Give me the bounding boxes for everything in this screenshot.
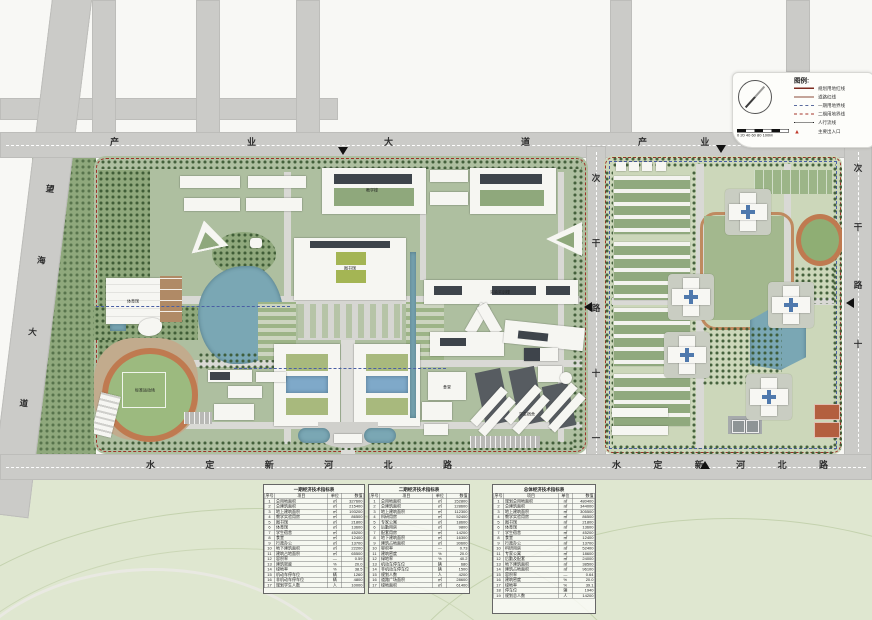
table-title: 一期经济技术指标表 bbox=[264, 485, 364, 493]
strip-buildings bbox=[614, 374, 690, 426]
table-cell: 17 bbox=[264, 583, 275, 588]
road-label-east: 次干路十 bbox=[852, 162, 864, 350]
legend-item-label: 道路红线 bbox=[818, 94, 836, 101]
legend-item: 人行流线 bbox=[794, 118, 869, 127]
legend-item: 二期用地界线 bbox=[794, 110, 869, 119]
label-library: 图书馆 bbox=[344, 265, 356, 271]
table-cell: 61400 bbox=[447, 583, 469, 588]
north-entrance-marker bbox=[338, 147, 348, 155]
road-name-char: 定 bbox=[205, 458, 214, 471]
blue-core-icon bbox=[784, 303, 798, 307]
road-name-char: 次 bbox=[854, 162, 863, 174]
legend-item-label: 规划用地红线 bbox=[818, 85, 845, 92]
road-name-char: 业 bbox=[700, 135, 709, 148]
dark-roof bbox=[334, 174, 412, 184]
table-phase1: 一期经济技术指标表序号项目单位数值1总用地面积㎡3276002总建筑面积㎡215… bbox=[263, 484, 365, 594]
dark-roof bbox=[440, 338, 466, 346]
compass-icon bbox=[738, 80, 772, 114]
table-cell: 绿地面积 bbox=[380, 583, 433, 588]
road-name-char: 水 bbox=[612, 458, 621, 471]
table-total: 总体经济技术指标表序号项目单位数值1规划总用地面积㎡4804002总建筑面积㎡3… bbox=[492, 484, 596, 614]
road-name-char: 业 bbox=[247, 135, 256, 148]
middle-road-entrance-marker bbox=[584, 302, 592, 312]
table-cell: ㎡ bbox=[433, 583, 447, 588]
east-campus-north-entrance-marker bbox=[716, 145, 726, 153]
table-header-cell: 序号 bbox=[264, 493, 275, 498]
main-campus-content bbox=[94, 156, 588, 454]
legend-line-sample-icon bbox=[794, 96, 814, 97]
scale-bar-numbers: 0 20 40 60 80 100M bbox=[737, 133, 789, 138]
dark-roof bbox=[210, 372, 230, 380]
planting bbox=[366, 398, 408, 415]
table-title: 总体经济技术指标表 bbox=[493, 485, 595, 493]
planting bbox=[814, 404, 840, 420]
road-name-char: 路 bbox=[819, 458, 828, 471]
compass-needle-icon bbox=[745, 86, 765, 108]
label-teaching: 教学楼 bbox=[366, 187, 378, 193]
table-header-cell: 序号 bbox=[493, 493, 504, 498]
blue-core-icon bbox=[684, 295, 698, 299]
road-name-char: 十 bbox=[592, 367, 601, 379]
road-label-south-left: 水定新河北路 bbox=[146, 458, 452, 471]
road-label-industry-left: 产业大道 bbox=[110, 135, 530, 148]
road-name-char: 北 bbox=[778, 458, 787, 471]
table-cell: 人 bbox=[328, 583, 342, 588]
road-name-char: 路 bbox=[443, 458, 452, 471]
building bbox=[250, 238, 262, 248]
legend-item: 规划用地红线 bbox=[794, 84, 869, 93]
water bbox=[286, 376, 328, 393]
indicator-table: 序号项目单位数值1总用地面积㎡3276002总建筑面积㎡2154003地上建筑面… bbox=[264, 493, 364, 588]
scale-bar-icon bbox=[737, 129, 789, 133]
label-canteen: 食堂 bbox=[443, 384, 451, 390]
legend-entrance-label: 主要出入口 bbox=[818, 128, 841, 135]
road-name-char: 海 bbox=[36, 254, 46, 267]
building bbox=[424, 424, 448, 435]
table-cell: 14200 bbox=[572, 593, 594, 598]
road-name-char: 路 bbox=[592, 302, 601, 314]
main-campus bbox=[94, 156, 588, 454]
building bbox=[246, 198, 302, 211]
building bbox=[430, 192, 468, 205]
road-label-south-right: 水定新河北路 bbox=[612, 458, 828, 471]
planting bbox=[336, 270, 366, 283]
water bbox=[298, 428, 330, 443]
road-name-char: 干 bbox=[592, 237, 601, 249]
road-name-char: 产 bbox=[110, 135, 119, 148]
road-name-char: 水 bbox=[146, 458, 155, 471]
table-cell: 规划学生人数 bbox=[275, 583, 328, 588]
table-row: 17规划学生人数人10000 bbox=[264, 583, 364, 588]
road-name-char: 产 bbox=[638, 135, 647, 148]
building bbox=[184, 198, 240, 211]
legend-item-label: 二期用地界线 bbox=[818, 111, 845, 118]
legend-item: 道路红线 bbox=[794, 93, 869, 102]
planting bbox=[814, 422, 840, 438]
parking bbox=[470, 436, 540, 448]
planting bbox=[286, 398, 328, 415]
table-cell: 人 bbox=[558, 593, 572, 598]
blue-core-icon bbox=[680, 353, 694, 357]
planting bbox=[480, 190, 544, 206]
table-cell: 17 bbox=[369, 583, 380, 588]
water bbox=[110, 324, 126, 331]
master-plan-canvas: 产业大道 产业大道 水定新河北路 水定新河北路 望海大道 次干路十一 次干路十 … bbox=[0, 0, 872, 620]
legend-line-sample-icon bbox=[794, 113, 814, 114]
table-cell: 规划总人数 bbox=[504, 593, 558, 598]
road-name-char: 望 bbox=[45, 182, 55, 195]
legend-line-sample-icon bbox=[794, 122, 814, 123]
south-entrance-marker bbox=[700, 461, 710, 469]
water bbox=[366, 376, 408, 393]
table-cell: 19 bbox=[493, 593, 504, 598]
planting bbox=[336, 252, 366, 265]
building bbox=[612, 426, 668, 435]
building bbox=[422, 402, 452, 420]
table-phase2: 二期经济技术指标表序号项目单位数值1总用地面积㎡1528002总建筑面积㎡128… bbox=[368, 484, 470, 594]
planting bbox=[796, 214, 842, 266]
legend-items: 规划用地红线道路红线一期用地界线二期用地界线人行流线 bbox=[794, 84, 869, 127]
building bbox=[248, 176, 306, 188]
building bbox=[642, 162, 652, 171]
building bbox=[629, 162, 639, 171]
dark-roof bbox=[434, 286, 462, 295]
road-name-char: 河 bbox=[736, 458, 745, 471]
road-name-char: 次 bbox=[592, 172, 601, 184]
indicator-table: 序号项目单位数值1规划总用地面积㎡4804002总建筑面积㎡3440003地上建… bbox=[493, 493, 595, 599]
building bbox=[430, 170, 468, 182]
legend-item-label: 一期用地界线 bbox=[818, 102, 845, 109]
legend-item-label: 人行流线 bbox=[818, 119, 836, 126]
planting bbox=[298, 304, 402, 338]
strip-buildings bbox=[614, 176, 690, 234]
tree-texture bbox=[604, 170, 613, 448]
road-name-char: 一 bbox=[592, 432, 601, 444]
legend-line-sample-icon bbox=[794, 88, 814, 90]
building bbox=[732, 420, 745, 433]
east-entrance-marker bbox=[846, 298, 854, 308]
road-name-char: 新 bbox=[265, 458, 274, 471]
dark-roof bbox=[480, 174, 542, 184]
label-stadium: 标准运动场 bbox=[135, 387, 155, 393]
top-vertical-road-3 bbox=[296, 0, 320, 134]
water bbox=[364, 428, 396, 443]
building bbox=[746, 420, 759, 433]
building bbox=[560, 372, 572, 384]
table-cell: 10000 bbox=[342, 583, 364, 588]
road-name-char: 道 bbox=[19, 397, 29, 410]
top-vertical-road-4 bbox=[610, 0, 632, 134]
building bbox=[214, 404, 254, 420]
table-title: 二期经济技术指标表 bbox=[369, 485, 469, 493]
entrance-triangle-icon: ▲ bbox=[794, 129, 814, 134]
road-name-char: 干 bbox=[854, 221, 863, 233]
building bbox=[180, 176, 240, 188]
path bbox=[96, 306, 290, 307]
top-vertical-road-2 bbox=[196, 0, 220, 134]
road-name-char: 大 bbox=[28, 325, 38, 338]
east-campus-content bbox=[604, 156, 842, 454]
top-vertical-road-1 bbox=[92, 0, 116, 134]
table-phase1-content: 一期经济技术指标表序号项目单位数值1总用地面积㎡3276002总建筑面积㎡215… bbox=[264, 485, 364, 588]
road-name-char: 北 bbox=[384, 458, 393, 471]
table-row: 17绿地面积㎡61400 bbox=[369, 583, 469, 588]
blue-core-icon bbox=[741, 210, 755, 214]
road-name-char: 河 bbox=[324, 458, 333, 471]
parking bbox=[184, 412, 212, 424]
table-header-cell: 序号 bbox=[369, 493, 380, 498]
table-total-content: 总体经济技术指标表序号项目单位数值1规划总用地面积㎡4804002总建筑面积㎡3… bbox=[493, 485, 595, 599]
indicator-table: 序号项目单位数值1总用地面积㎡1528002总建筑面积㎡1286003地上建筑面… bbox=[369, 493, 469, 588]
road-name-char: 道 bbox=[521, 135, 530, 148]
dark-roof bbox=[546, 286, 570, 295]
path bbox=[234, 368, 446, 369]
label-dorms: 学生宿舍 bbox=[519, 411, 535, 417]
building bbox=[616, 162, 626, 171]
road-name-char: 十 bbox=[854, 338, 863, 350]
label-gym: 体育馆 bbox=[127, 298, 139, 304]
building bbox=[256, 372, 286, 382]
blue-core-icon bbox=[762, 395, 776, 399]
legend-item: 一期用地界线 bbox=[794, 101, 869, 110]
dark-roof bbox=[310, 241, 390, 248]
legend-line-sample-icon bbox=[794, 105, 814, 106]
road-name-char: 路 bbox=[854, 279, 863, 291]
legend-inner: 图例: 规划用地红线道路红线一期用地界线二期用地界线人行流线 0 20 40 6… bbox=[733, 73, 872, 147]
water bbox=[410, 252, 416, 418]
road-name-char: 定 bbox=[653, 458, 662, 471]
scale-bar: 0 20 40 60 80 100M bbox=[737, 129, 789, 138]
legend-panel: 图例: 规划用地红线道路红线一期用地界线二期用地界线人行流线 0 20 40 6… bbox=[732, 72, 872, 148]
building bbox=[228, 386, 262, 398]
east-campus bbox=[604, 156, 842, 454]
road-name-char: 大 bbox=[384, 135, 393, 148]
dark-roof bbox=[524, 348, 540, 361]
table-phase2-content: 二期经济技术指标表序号项目单位数值1总用地面积㎡1528002总建筑面积㎡128… bbox=[369, 485, 469, 588]
building bbox=[612, 408, 668, 417]
label-labs: 实验实训楼 bbox=[490, 289, 510, 295]
building bbox=[538, 366, 562, 382]
top-vertical-road-5 bbox=[786, 0, 810, 72]
planting bbox=[160, 276, 182, 322]
legend-entrance-item: ▲ 主要出入口 bbox=[794, 127, 841, 136]
table-row: 19规划总人数人14200 bbox=[493, 593, 595, 598]
tree-texture bbox=[612, 444, 834, 454]
building bbox=[656, 162, 666, 171]
building bbox=[334, 434, 362, 443]
